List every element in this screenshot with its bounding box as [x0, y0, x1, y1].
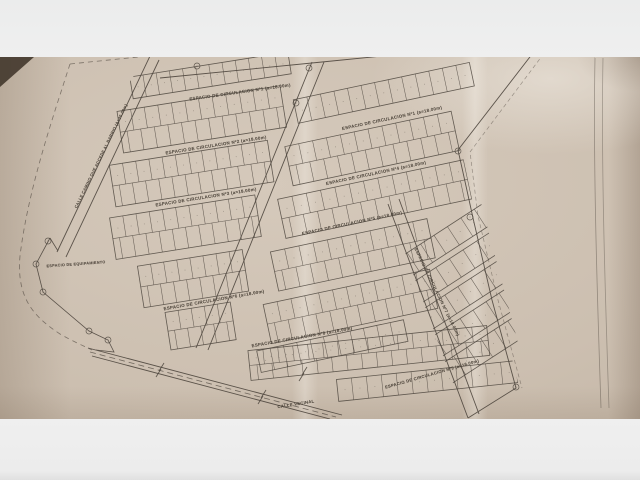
plan-drawing-layer: ESPACIO DE CIRCULACION Nº1 (a=18.00m)ESP…	[0, 57, 640, 419]
plan-labels: ESPACIO DE CIRCULACION Nº1 (a=18.00m)ESP…	[0, 57, 640, 419]
street-label-espacio-circulacion-9: ESPACIO DE CIRCULACION Nº9 (a=18.00m)	[384, 358, 479, 389]
photo-of-subdivision-plan: ESPACIO DE CIRCULACION Nº1 (a=18.00m)ESP…	[0, 57, 640, 419]
letterbox-bottom	[0, 419, 640, 480]
street-label-espacio-circulacion-1b: ESPACIO DE CIRCULACION Nº1 (a=18.00m)	[341, 105, 442, 131]
street-label-espacio-circulacion-4: ESPACIO DE CIRCULACION Nº4 (a=18.00m)	[325, 160, 426, 186]
street-label-espacio-circulacion-3: ESPACIO DE CIRCULACION Nº3 (a=18.00m)	[155, 187, 257, 208]
letterbox-top	[0, 0, 640, 57]
road-label-calle-camino: CALLE CAMINO QUE ACCEDE AL BARRIO (A=20.…	[74, 103, 129, 209]
street-label-espacio-circulacion-8: ESPACIO DE CIRCULACION Nº8 (a=18.00m)	[251, 326, 353, 349]
street-label-espacio-circulacion-6: ESPACIO DE CIRCULACION Nº6 (a=18.00m)	[163, 289, 265, 312]
area-label-espacio-equipamiento: ESPACIO DE EQUIPAMIENTO	[46, 260, 105, 268]
road-label-calle-vecinal: CALLE VECINAL	[277, 399, 315, 409]
street-label-espacio-circulacion-7: ESPACIO DE CIRCULACION Nº7 (a=18.00m)	[413, 247, 460, 337]
street-label-espacio-circulacion-2: ESPACIO DE CIRCULACION Nº2 (a=18.00m)	[165, 135, 267, 156]
street-label-espacio-circulacion-5: ESPACIO DE CIRCULACION Nº5 (a=18.00m)	[301, 210, 402, 236]
screenshot: ESPACIO DE CIRCULACION Nº1 (a=18.00m)ESP…	[0, 0, 640, 480]
street-label-espacio-circulacion-1a: ESPACIO DE CIRCULACION Nº1 (a=18.00m)	[189, 82, 291, 101]
